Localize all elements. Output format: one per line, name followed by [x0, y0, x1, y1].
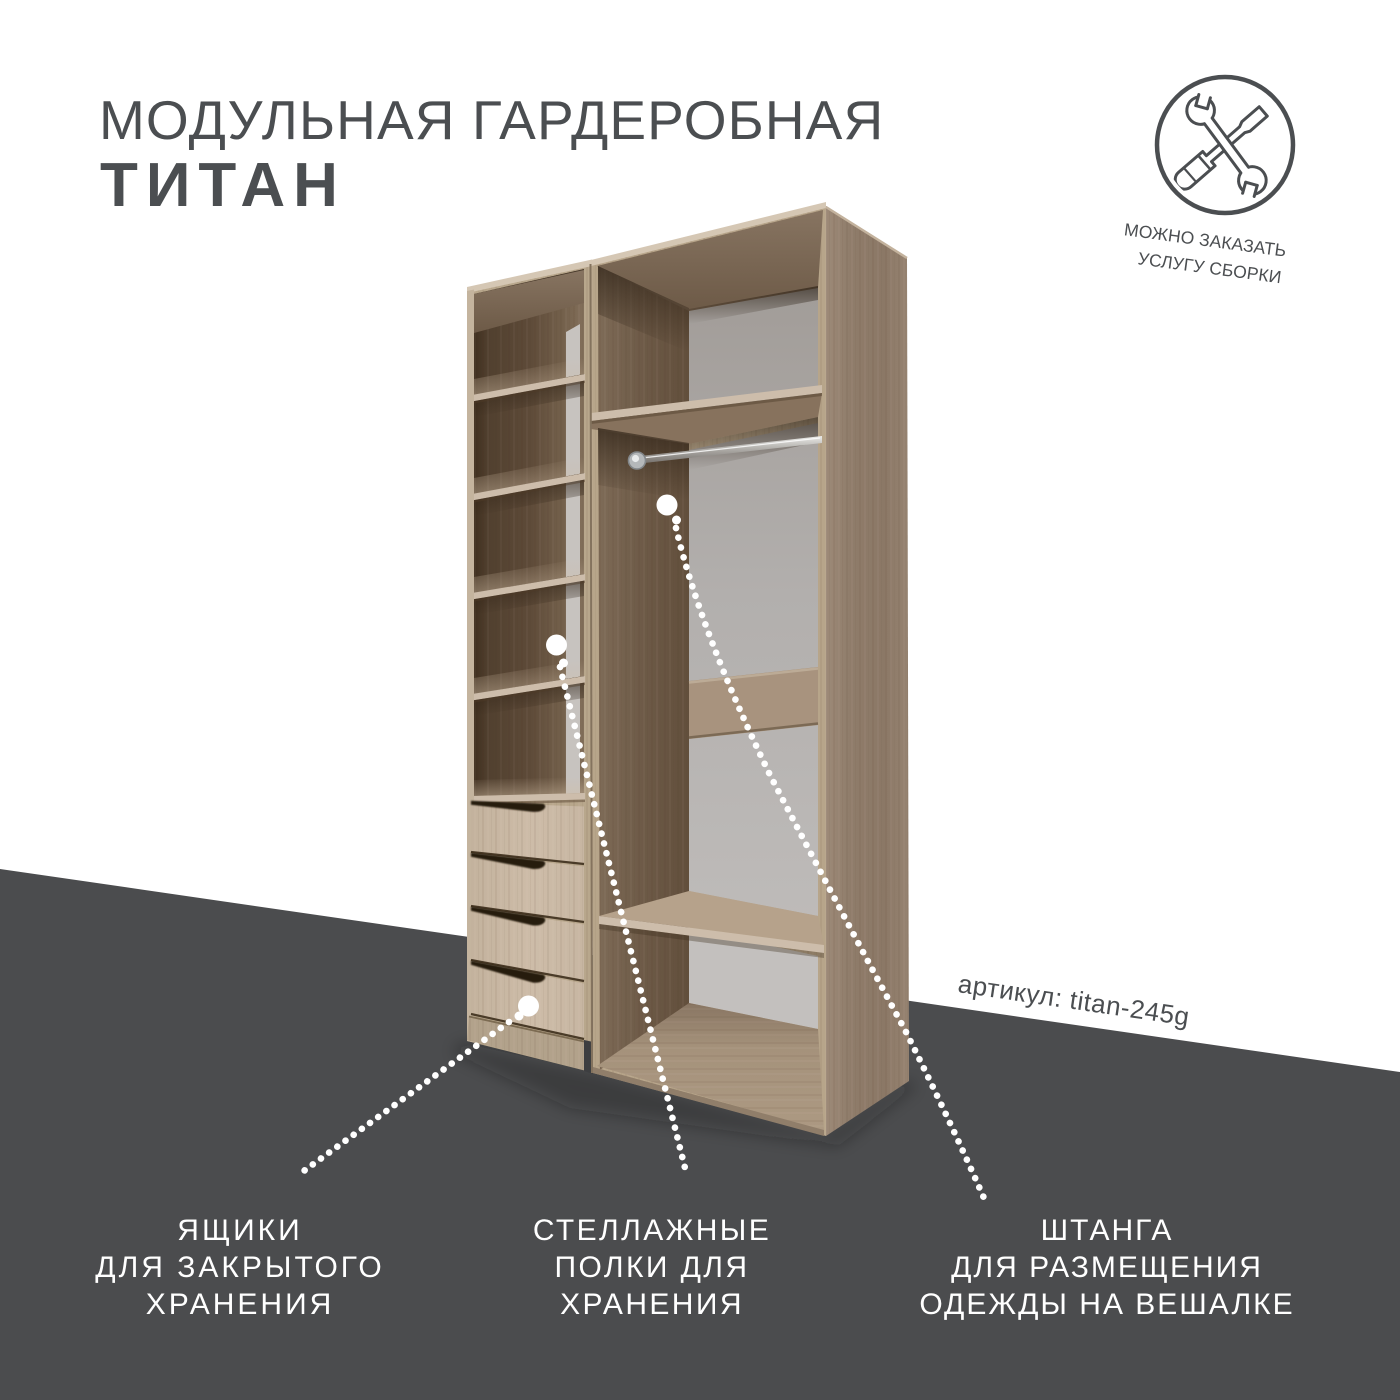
svg-text:ШТАНГА: ШТАНГА [1041, 1214, 1174, 1247]
svg-text:ДЛЯ РАЗМЕЩЕНИЯ: ДЛЯ РАЗМЕЩЕНИЯ [951, 1251, 1263, 1284]
svg-text:ХРАНЕНИЯ: ХРАНЕНИЯ [146, 1288, 335, 1321]
svg-text:МОДУЛЬНАЯ ГАРДЕРОБНАЯ: МОДУЛЬНАЯ ГАРДЕРОБНАЯ [99, 89, 884, 151]
svg-text:СТЕЛЛАЖНЫЕ: СТЕЛЛАЖНЫЕ [533, 1214, 771, 1247]
svg-text:ОДЕЖДЫ НА ВЕШАЛКЕ: ОДЕЖДЫ НА ВЕШАЛКЕ [919, 1288, 1294, 1321]
svg-text:ПОЛКИ ДЛЯ: ПОЛКИ ДЛЯ [555, 1251, 750, 1284]
svg-text:ЯЩИКИ: ЯЩИКИ [177, 1214, 302, 1247]
svg-text:ХРАНЕНИЯ: ХРАНЕНИЯ [560, 1288, 744, 1321]
svg-text:ДЛЯ ЗАКРЫТОГО: ДЛЯ ЗАКРЫТОГО [95, 1251, 384, 1284]
svg-text:ТИТАН: ТИТАН [100, 151, 346, 220]
